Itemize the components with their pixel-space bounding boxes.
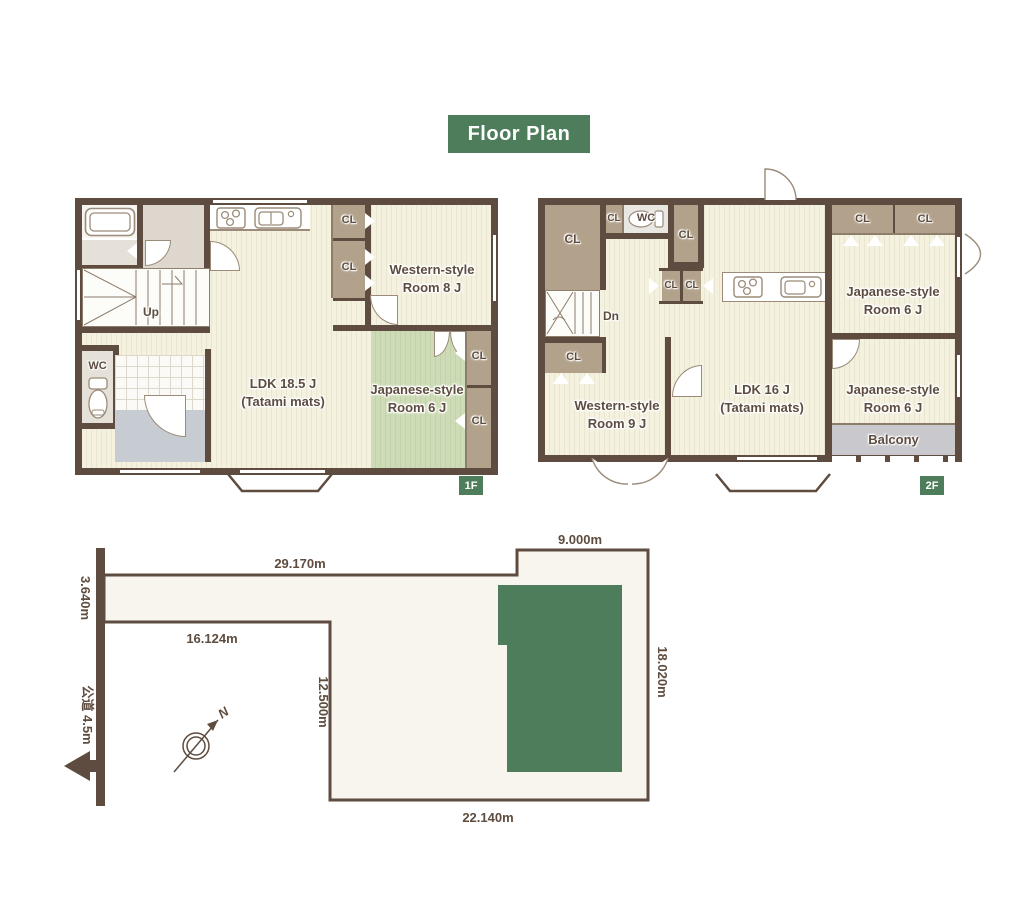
dim-inner-left: 12.500m	[316, 676, 331, 727]
entrance-sliding-door	[120, 468, 200, 475]
window	[737, 455, 817, 462]
ldk-2f-label: LDK 16 J (Tatami mats)	[720, 381, 804, 417]
dim-bottom: 22.140m	[462, 810, 513, 825]
closet-door-mark	[455, 413, 465, 429]
closet-label: CL	[545, 351, 602, 363]
wc-label-2f: WC	[624, 212, 668, 224]
floor-1-badge: 1F	[459, 476, 483, 495]
stove-icon	[216, 207, 246, 229]
closet	[545, 205, 600, 290]
wall	[698, 205, 704, 268]
page-title: Floor Plan	[448, 115, 590, 153]
window	[955, 237, 962, 277]
closet-label: CL	[832, 213, 893, 225]
wall	[825, 205, 832, 455]
western-room-1f-label: Western-style Room 8 J	[389, 261, 474, 297]
window	[491, 235, 498, 301]
bay-outline-1f	[224, 472, 336, 496]
closet-door-mark	[365, 249, 375, 265]
closet-label: CL	[545, 232, 600, 246]
closet-label: CL	[333, 261, 365, 273]
road-label: 公道 4.5m	[80, 685, 95, 744]
closet-label: CL	[467, 350, 491, 362]
closet-label: CL	[895, 213, 955, 225]
site-plan: N 29.170m 9.000m 3.640m 16.124m 12.500m …	[50, 530, 700, 830]
dim-top-right: 9.000m	[558, 532, 602, 547]
closet-label: CL	[606, 213, 622, 224]
dim-right: 18.020m	[655, 646, 670, 697]
japanese-room-2f-top-label: Japanese-style Room 6 J	[846, 283, 939, 319]
up-label: Up	[134, 305, 168, 319]
stove-icon	[733, 276, 763, 298]
closet-door-mark	[903, 235, 919, 246]
closet-door-mark	[649, 278, 659, 294]
closet-door-mark	[553, 373, 569, 384]
bathtub-icon	[84, 207, 136, 237]
closet-door-mark	[455, 345, 465, 361]
stairs-down	[545, 290, 600, 337]
closet	[467, 388, 491, 468]
wall	[602, 343, 606, 373]
building-footprint	[498, 585, 622, 772]
window	[955, 355, 962, 397]
closet-label: CL	[333, 214, 365, 226]
door-arc	[672, 365, 702, 397]
sink-icon	[780, 276, 822, 298]
western-room-2f-label: Western-style Room 9 J	[574, 397, 659, 433]
door-arc	[210, 241, 240, 271]
wall	[82, 423, 119, 429]
door-arc	[370, 295, 398, 325]
floor-2-badge: 2F	[920, 476, 944, 495]
dn-label: Dn	[596, 309, 626, 323]
dim-inner-top: 16.124m	[186, 631, 237, 646]
closet-door-mark	[929, 235, 945, 246]
closet-label: CL	[674, 229, 698, 241]
exterior-door-top-2f	[758, 160, 804, 202]
bay-outline-2f	[712, 472, 834, 496]
wall	[205, 349, 211, 462]
closet-label: CL	[467, 415, 491, 427]
closet-label: CL	[683, 280, 701, 291]
dim-top: 29.170m	[274, 556, 325, 571]
floor-plan-page: Floor Plan Up	[0, 0, 1024, 909]
door-arc	[832, 339, 860, 369]
toilet-icon	[87, 377, 109, 421]
window	[75, 270, 82, 320]
exterior-door-right-2f	[962, 228, 1002, 280]
floor-1-plan: Up WC LDK	[75, 198, 498, 475]
closet-door-mark	[867, 235, 883, 246]
floor-2-plan: CL CL WC CL CL CL	[538, 198, 962, 462]
exterior-doors-bottom-2f	[590, 456, 670, 486]
closet-door-mark	[579, 373, 595, 384]
washroom-door-mark	[127, 243, 137, 259]
sink-icon	[254, 207, 302, 229]
balcony-label: Balcony	[832, 432, 955, 447]
closet-door-mark	[703, 278, 713, 294]
dim-left: 3.640m	[78, 576, 93, 620]
wc-label-1f: WC	[82, 360, 113, 372]
balcony-railing	[832, 455, 955, 462]
compass-north-label: N	[215, 703, 232, 721]
wall	[333, 298, 365, 301]
closet-door-mark	[843, 235, 859, 246]
window	[213, 198, 307, 205]
ldk-1f-label: LDK 18.5 J (Tatami mats)	[241, 375, 325, 411]
closet-door-mark	[365, 275, 375, 291]
closet-label: CL	[662, 280, 680, 291]
wall	[665, 337, 671, 455]
wall	[82, 327, 210, 333]
japanese-room-2f-bottom-label: Japanese-style Room 6 J	[846, 381, 939, 417]
japanese-room-1f-label: Japanese-style Room 6 J	[370, 381, 463, 417]
wall	[333, 238, 365, 241]
compass-icon	[174, 720, 218, 772]
wall	[659, 301, 703, 304]
closet-door-mark	[365, 213, 375, 229]
wall	[600, 233, 668, 239]
wall	[467, 385, 491, 388]
